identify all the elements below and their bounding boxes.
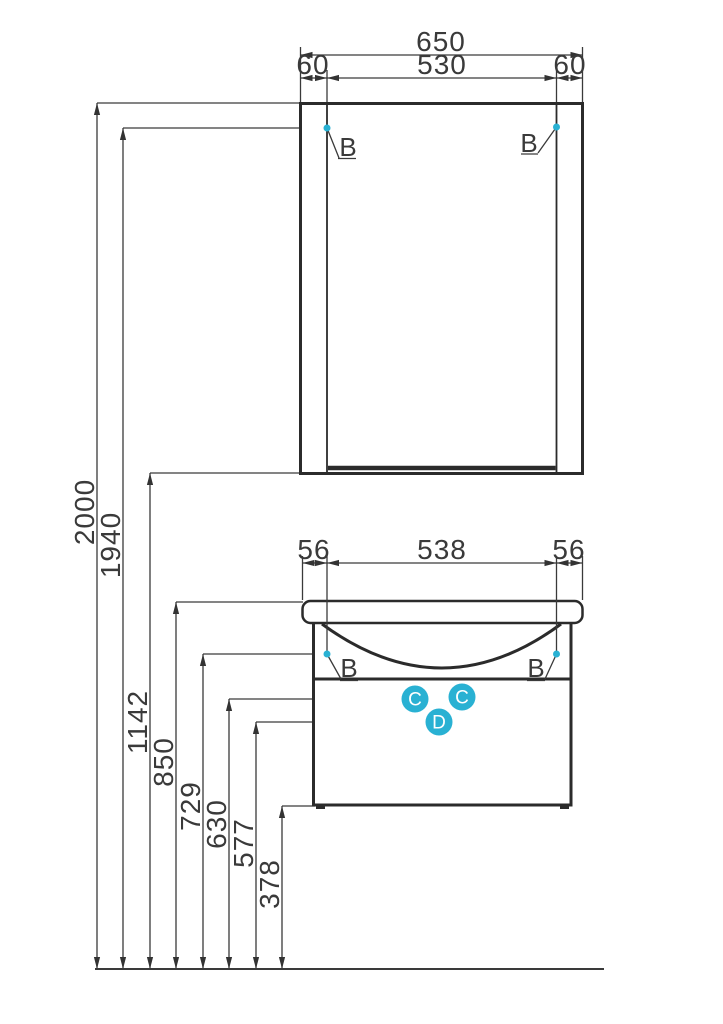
vanity-unit: [303, 601, 583, 809]
mount-callout-label: B: [340, 653, 357, 683]
vanity-foot-left: [316, 804, 325, 809]
vanity-center-width-label: 538: [417, 534, 467, 565]
mount-point-dot: [324, 651, 331, 658]
mirror-width-dimensions: 650 60 530 60: [296, 26, 586, 102]
mount-callout-label: B: [520, 128, 537, 158]
fitting-c2-label: C: [455, 688, 469, 709]
mount-callout-label: B: [527, 653, 544, 683]
mount-callout-label: B: [339, 132, 356, 162]
vanity-foot-right: [560, 804, 569, 809]
washbasin-rim: [303, 601, 583, 623]
mirror-left-width-label: 60: [296, 49, 329, 80]
mirror-center-width-label: 530: [417, 49, 467, 80]
mount-point-dot: [324, 125, 331, 132]
vanity-right-width-label: 56: [552, 534, 585, 565]
fitting-d-label: D: [432, 713, 446, 734]
mount-point-dot: [553, 651, 560, 658]
fitting-c1-label: C: [408, 690, 422, 711]
installation-drawing: 2000 1940 1142 850 729 630 577 378 650 6…: [0, 0, 723, 1024]
height-label-850: 850: [148, 737, 179, 787]
height-label-1940: 1940: [95, 512, 126, 578]
vanity-left-width-label: 56: [297, 534, 330, 565]
mirror-right-width-label: 60: [553, 49, 586, 80]
drawing-canvas: 2000 1940 1142 850 729 630 577 378 650 6…: [0, 0, 723, 1024]
mount-point-dot: [553, 124, 560, 131]
height-label-378: 378: [254, 859, 285, 909]
